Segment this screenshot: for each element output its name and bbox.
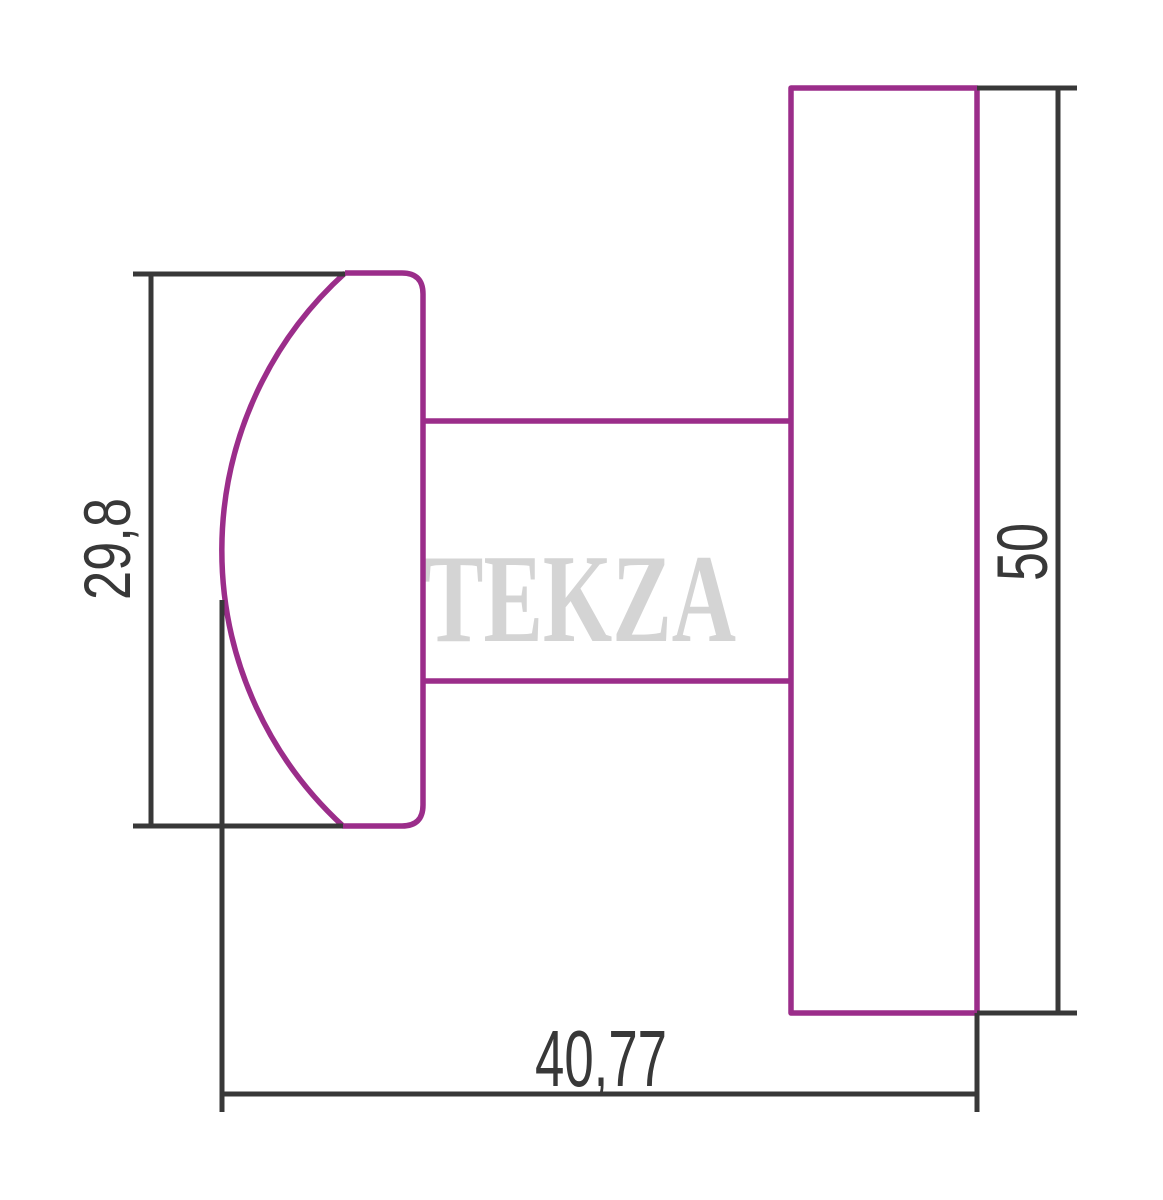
watermark-text: TEKZA xyxy=(424,530,736,669)
wall-plate-outline xyxy=(791,88,977,1013)
knob-height-label: 29,8 xyxy=(70,498,144,600)
depth-label: 40,77 xyxy=(535,1014,667,1103)
plate-height-label: 50 xyxy=(984,523,1063,581)
technical-drawing-page: TEKZA 29,8 50 40,77 xyxy=(0,0,1163,1200)
drawing-canvas: TEKZA 29,8 50 40,77 xyxy=(0,0,1163,1200)
knob-head-outline xyxy=(222,273,423,826)
